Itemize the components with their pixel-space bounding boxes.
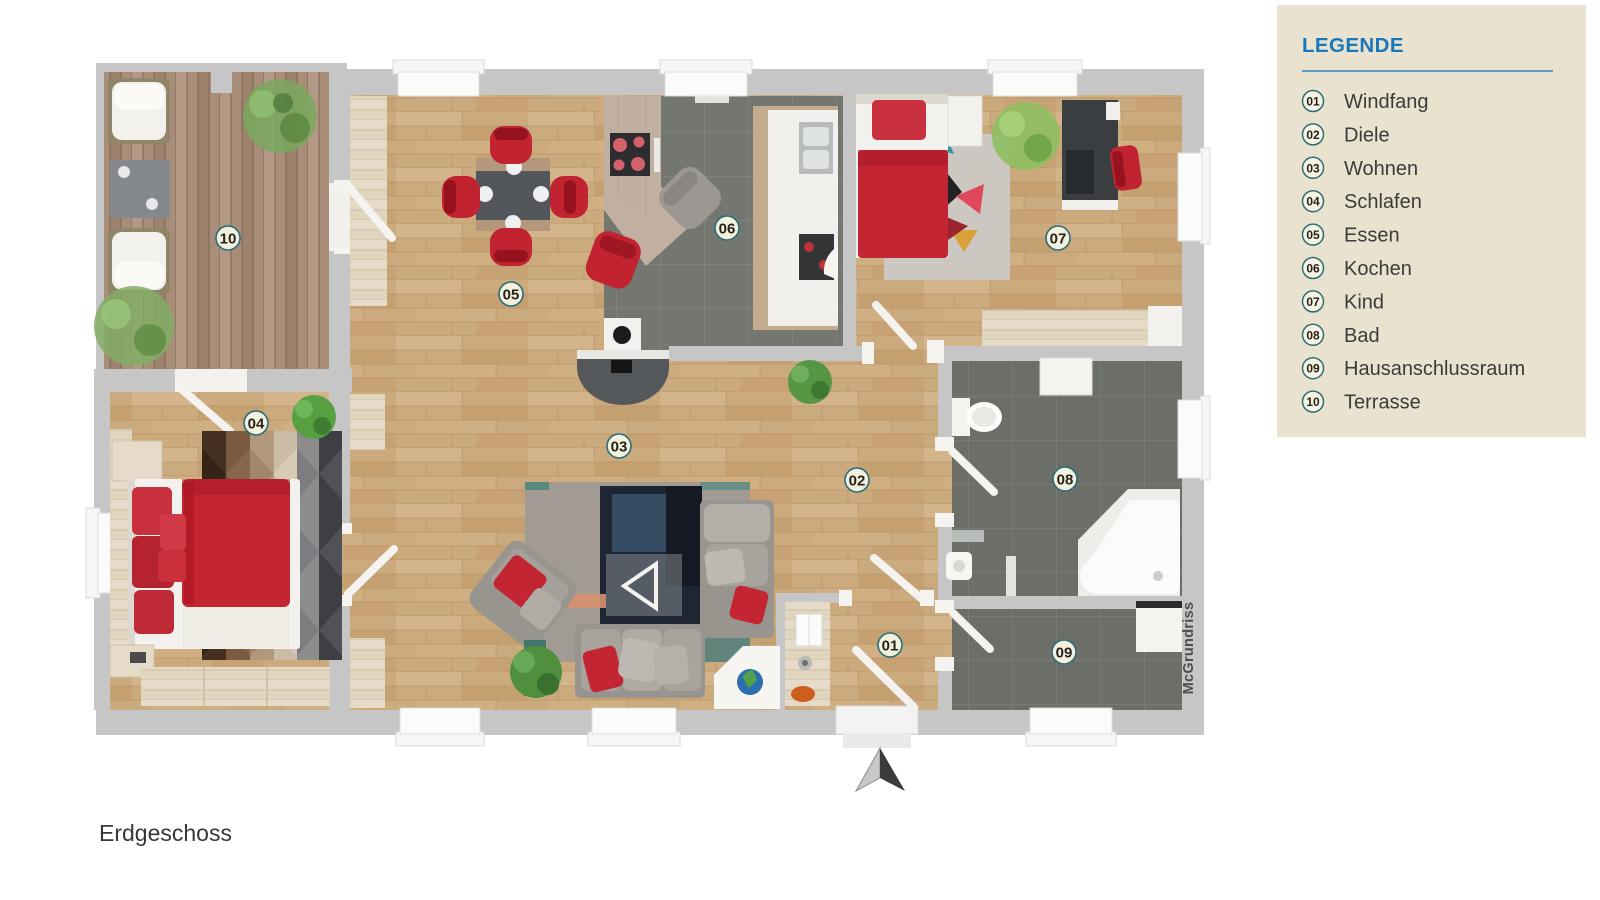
svg-text:08: 08	[1057, 472, 1074, 489]
svg-text:03: 03	[1306, 161, 1320, 175]
svg-text:Schlafen: Schlafen	[1344, 191, 1422, 213]
svg-text:09: 09	[1056, 645, 1073, 662]
svg-text:10: 10	[1306, 395, 1320, 409]
svg-text:04: 04	[248, 416, 265, 433]
svg-text:LEGENDE: LEGENDE	[1302, 34, 1404, 57]
svg-text:02: 02	[1306, 128, 1320, 142]
svg-text:Hausanschlussraum: Hausanschlussraum	[1344, 358, 1525, 380]
svg-text:08: 08	[1306, 328, 1320, 342]
svg-text:07: 07	[1306, 295, 1320, 309]
svg-text:Terrasse: Terrasse	[1344, 392, 1421, 414]
svg-text:10: 10	[220, 231, 237, 248]
svg-text:Windfang: Windfang	[1344, 91, 1429, 113]
svg-text:09: 09	[1306, 362, 1320, 376]
svg-text:06: 06	[719, 221, 736, 238]
svg-text:06: 06	[1306, 262, 1320, 276]
svg-text:02: 02	[849, 473, 866, 490]
svg-text:04: 04	[1306, 195, 1320, 209]
svg-text:Wohnen: Wohnen	[1344, 158, 1418, 180]
svg-text:01: 01	[1306, 95, 1320, 109]
svg-text:07: 07	[1050, 231, 1067, 248]
svg-text:McGrundriss: McGrundriss	[1181, 602, 1197, 695]
svg-text:Kochen: Kochen	[1344, 258, 1412, 280]
svg-text:Kind: Kind	[1344, 291, 1384, 313]
svg-text:01: 01	[882, 638, 899, 655]
svg-text:03: 03	[611, 439, 628, 456]
svg-text:Erdgeschoss: Erdgeschoss	[99, 820, 232, 846]
svg-text:Bad: Bad	[1344, 325, 1380, 347]
svg-text:Diele: Diele	[1344, 124, 1390, 146]
svg-text:05: 05	[503, 287, 520, 304]
svg-text:Essen: Essen	[1344, 225, 1400, 247]
svg-text:05: 05	[1306, 228, 1320, 242]
